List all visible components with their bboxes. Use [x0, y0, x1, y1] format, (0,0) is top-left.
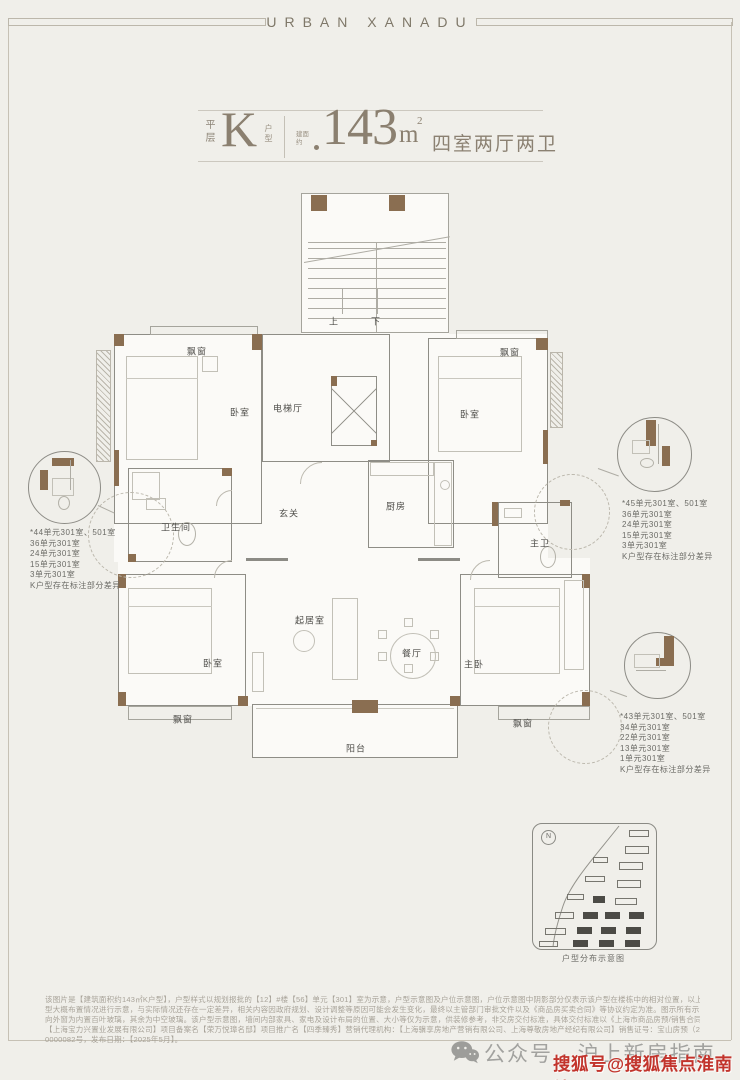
annotation-line: 15单元301室 — [30, 560, 121, 571]
room-label: 餐厅 — [402, 647, 422, 660]
plan-shape-fur — [378, 630, 387, 639]
plan-shape-fur — [474, 588, 560, 674]
plan-shape-ln — [610, 690, 627, 697]
room-label: 下 — [371, 315, 381, 328]
plan-shape-ln — [636, 670, 666, 671]
annotation-line: 36单元301室 — [622, 510, 713, 521]
plan-shape-ell — [640, 458, 654, 468]
plan-shape-wb — [118, 692, 126, 706]
plan-shape-wb — [352, 700, 378, 713]
plan-shape-ln — [342, 288, 343, 314]
site-plan-inset: N — [532, 823, 657, 950]
building-footprint — [625, 846, 649, 854]
annotation-line: 15单元301室 — [622, 531, 713, 542]
plan-shape-wb — [662, 446, 670, 466]
annotation-line: 1单元301室 — [620, 754, 711, 765]
disclaimer-line: 向外窗为内置百叶玻璃，其余为中空玻璃。该户型示意图，墙间内部家具、家电及设计布局… — [45, 1015, 700, 1025]
plan-shape-ln — [308, 278, 446, 279]
building-footprint — [583, 912, 598, 919]
plan-shape-wb — [492, 502, 498, 526]
plan-shape-fur — [438, 356, 522, 452]
plan-shape-wb — [664, 636, 674, 660]
annotation-line: *45单元301室、501室 — [622, 499, 713, 510]
annotation-right-bottom: *43单元301室、501室 34单元301室 22单元301室 13单元301… — [620, 712, 711, 775]
plan-shape-lnl — [128, 606, 212, 607]
disclaimer-line: 【上海宝力兴置业发展有限公司】项目备案名【荣万悦璋名邸】项目推广名【四季臻秀】营… — [45, 1025, 700, 1035]
building-footprint — [545, 928, 566, 935]
building-footprint — [593, 896, 605, 903]
flyer-page: URBAN XANADU 平层 K 户型 建面约 143 m 2 四室两厅两卫 … — [0, 0, 740, 1080]
plan-shape-wb — [252, 334, 262, 350]
plan-shape-fur — [370, 462, 434, 476]
room-label: 飘窗 — [173, 713, 193, 726]
plan-shape-wb — [114, 450, 119, 486]
plan-shape-circf — [440, 480, 450, 490]
annotation-line: 36单元301室 — [30, 539, 121, 550]
annotation-line: K户型存在标注部分差异 — [620, 765, 711, 776]
plan-shape-x — [331, 376, 377, 446]
plan-shape-wb — [40, 470, 48, 490]
plan-shape-wg — [418, 558, 460, 561]
plan-shape-wb — [114, 334, 124, 346]
plan-shape-hat — [550, 352, 563, 428]
annotation-line: 34单元301室 — [620, 723, 711, 734]
plan-shape-fur — [202, 356, 218, 372]
wechat-icon — [450, 1040, 480, 1064]
annotation-line: 22单元301室 — [620, 733, 711, 744]
plan-shape-ln — [308, 242, 446, 243]
annotation-line: K户型存在标注部分差异 — [622, 552, 713, 563]
room-label: 卫生间 — [161, 521, 191, 534]
room-label: 上 — [329, 315, 339, 328]
building-footprint — [629, 912, 644, 919]
plan-shape-lnl — [126, 378, 198, 379]
plan-shape-wb — [311, 195, 327, 211]
plan-shape-fur — [404, 618, 413, 627]
plan-shape-wb — [389, 195, 405, 211]
plan-shape-ln — [658, 424, 659, 464]
plan-shape-wg — [246, 558, 288, 561]
annotation-line: *44单元301室、501室 — [30, 528, 121, 539]
building-footprint — [617, 880, 641, 888]
annotation-line: 3单元301室 — [30, 570, 121, 581]
plan-shape-rooml — [456, 330, 548, 339]
plan-shape-ell — [58, 496, 70, 510]
annotation-line: 3单元301室 — [622, 541, 713, 552]
plan-shape-ln — [377, 288, 378, 314]
plan-shape-ln — [598, 468, 619, 476]
north-compass-icon: N — [541, 830, 556, 845]
sohu-watermark: 搜狐号@搜狐焦点淮南站 — [553, 1051, 740, 1080]
plan-shape-lnl — [474, 606, 560, 607]
building-footprint — [539, 941, 558, 947]
plan-shape-fur — [564, 580, 584, 670]
plan-shape-hat — [96, 350, 111, 462]
room-label: 卧室 — [460, 408, 480, 421]
plan-shape-wb — [371, 440, 377, 446]
annotation-line: 13单元301室 — [620, 744, 711, 755]
plan-shape-fur — [434, 462, 452, 546]
plan-shape-fur — [128, 588, 212, 674]
room-label: 飘窗 — [187, 345, 207, 358]
building-footprint — [601, 927, 616, 934]
disclaimer-line: 该图片是【建筑面积约143㎡K户型】，户型样式以规划报批的【12】#楼【56】单… — [45, 995, 700, 1005]
building-footprint — [626, 927, 641, 934]
room-label: 飘窗 — [513, 717, 533, 730]
room-label: 飘窗 — [500, 346, 520, 359]
building-footprint — [573, 940, 588, 947]
plan-shape-ln — [308, 268, 446, 269]
plan-shape-wb — [543, 430, 548, 464]
building-footprint — [615, 898, 637, 905]
building-footprint — [593, 857, 608, 863]
building-footprint — [577, 927, 592, 934]
plan-shape-wb — [536, 338, 548, 350]
plan-shape-lnl — [438, 378, 522, 379]
plan-shape-fur — [252, 652, 264, 692]
annotation-line: *43单元301室、501室 — [620, 712, 711, 723]
plan-shape-wb — [331, 376, 337, 386]
building-footprint — [585, 876, 605, 882]
plan-shape-circf — [293, 630, 315, 652]
building-footprint — [619, 862, 643, 870]
plan-shape-fur — [504, 508, 522, 518]
room-label: 阳台 — [346, 742, 366, 755]
plan-shape-wb — [450, 696, 460, 706]
annotation-left: *44单元301室、501室 36单元301室 24单元301室 15单元301… — [30, 528, 121, 591]
plan-shape-ln — [70, 460, 71, 490]
inset-caption: 户型分布示意图 — [532, 953, 655, 964]
room-label: 电梯厅 — [273, 402, 303, 415]
room-label: 玄关 — [279, 507, 299, 520]
annotation-right-middle: *45单元301室、501室 36单元301室 24单元301室 15单元301… — [622, 499, 713, 562]
plan-shape-fur — [332, 598, 358, 680]
plan-shape-cird — [548, 690, 622, 764]
room-label: 厨房 — [386, 500, 406, 513]
annotation-line: K户型存在标注部分差异 — [30, 581, 121, 592]
annotation-line: 24单元301室 — [30, 549, 121, 560]
plan-shape-fur — [632, 440, 650, 454]
room-label: 卧室 — [203, 657, 223, 670]
annotation-line: 24单元301室 — [622, 520, 713, 531]
building-footprint — [555, 912, 574, 919]
room-label: 主卫 — [530, 537, 550, 550]
plan-shape-wb — [222, 468, 232, 476]
plan-shape-fur — [126, 356, 198, 460]
plan-shape-rooml — [301, 193, 449, 333]
plan-shape-wb — [238, 696, 248, 706]
plan-shape-fur — [634, 654, 660, 668]
room-label: 起居室 — [295, 614, 325, 627]
plan-shape-fur — [378, 652, 387, 661]
plan-shape-fur — [430, 652, 439, 661]
building-footprint — [567, 894, 584, 900]
building-footprint — [599, 940, 614, 947]
room-label: 卧室 — [230, 406, 250, 419]
building-footprint — [605, 912, 620, 919]
room-label: 主卧 — [464, 658, 484, 671]
plan-shape-rooml — [150, 326, 258, 335]
building-footprint — [625, 940, 640, 947]
disclaimer-line: 型大概布置情况进行示意，与实际情况还存在一定差异，相关内容因政府规划、设计调整等… — [45, 1005, 700, 1015]
building-footprint — [629, 830, 649, 837]
plan-shape-fur — [430, 630, 439, 639]
plan-shape-fur — [404, 664, 413, 673]
